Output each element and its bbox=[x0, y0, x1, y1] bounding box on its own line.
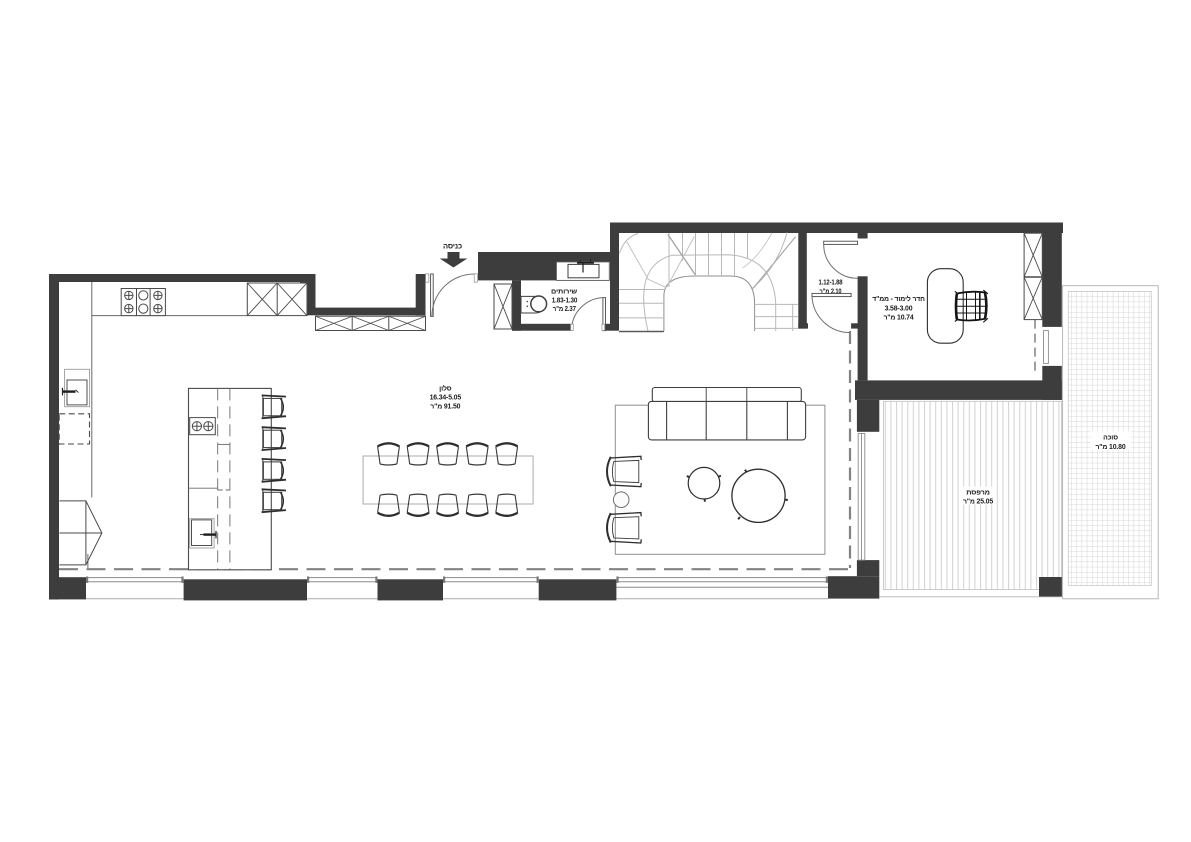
svg-text:שירותים: שירותים bbox=[551, 289, 578, 296]
svg-text:3.58-3.00: 3.58-3.00 bbox=[885, 305, 913, 312]
svg-text:25.05 מ"ר: 25.05 מ"ר bbox=[963, 499, 993, 506]
svg-text:10.80 מ"ר: 10.80 מ"ר bbox=[1095, 444, 1125, 451]
svg-text:2.37 מ"ר: 2.37 מ"ר bbox=[553, 306, 576, 313]
svg-text:91.50 מ"ר: 91.50 מ"ר bbox=[430, 403, 460, 410]
svg-text:1.83-1.30: 1.83-1.30 bbox=[552, 298, 578, 305]
svg-text:סוכה: סוכה bbox=[1103, 435, 1118, 442]
svg-text:מרפסת: מרפסת bbox=[966, 489, 990, 496]
svg-text:סלון: סלון bbox=[439, 384, 452, 392]
svg-text:כניסה: כניסה bbox=[443, 242, 462, 251]
svg-text:16.34-5.05: 16.34-5.05 bbox=[430, 394, 462, 401]
svg-text:1.12-1.88: 1.12-1.88 bbox=[819, 280, 843, 287]
svg-text:10.74 מ"ר: 10.74 מ"ר bbox=[883, 315, 913, 322]
svg-text:2.10 מ"ר: 2.10 מ"ר bbox=[820, 288, 842, 295]
svg-text:חדר לימוד - ממ"ד: חדר לימוד - ממ"ד bbox=[872, 295, 925, 303]
